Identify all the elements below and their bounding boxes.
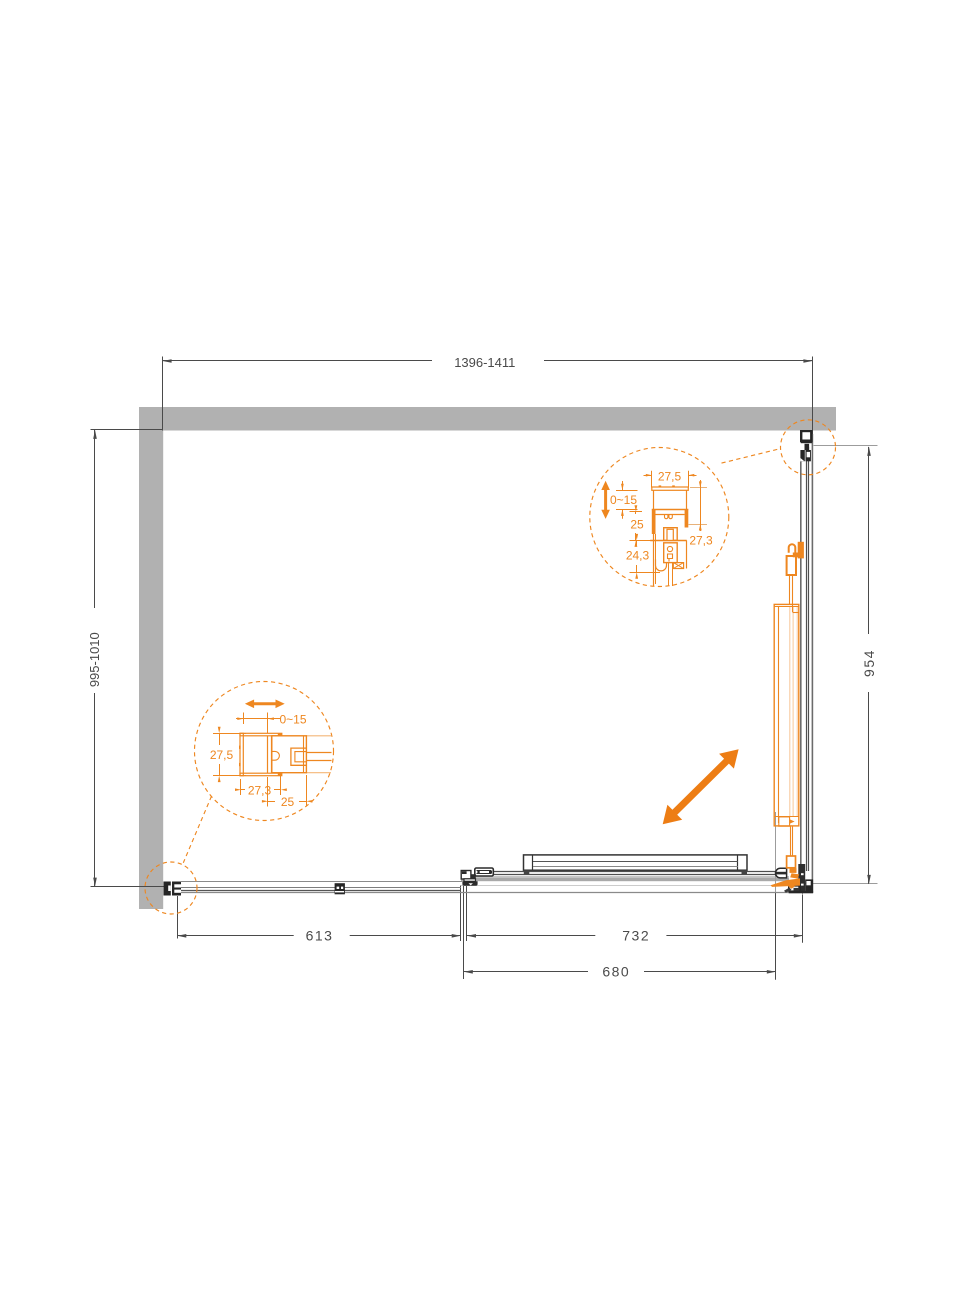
- svg-text:25: 25: [281, 795, 295, 809]
- svg-text:25: 25: [630, 518, 644, 532]
- svg-text:27,5: 27,5: [658, 469, 682, 483]
- svg-text:613: 613: [306, 927, 334, 943]
- svg-text:680: 680: [602, 963, 630, 979]
- svg-text:732: 732: [622, 927, 650, 943]
- svg-text:995-1010: 995-1010: [87, 632, 102, 687]
- svg-text:954: 954: [861, 649, 877, 677]
- svg-text:1396-1411: 1396-1411: [454, 355, 515, 370]
- svg-text:27,3: 27,3: [689, 534, 713, 548]
- svg-text:27,5: 27,5: [210, 748, 234, 762]
- svg-text:24,3: 24,3: [626, 549, 650, 563]
- svg-text:0~15: 0~15: [610, 493, 637, 507]
- svg-text:0~15: 0~15: [279, 712, 306, 726]
